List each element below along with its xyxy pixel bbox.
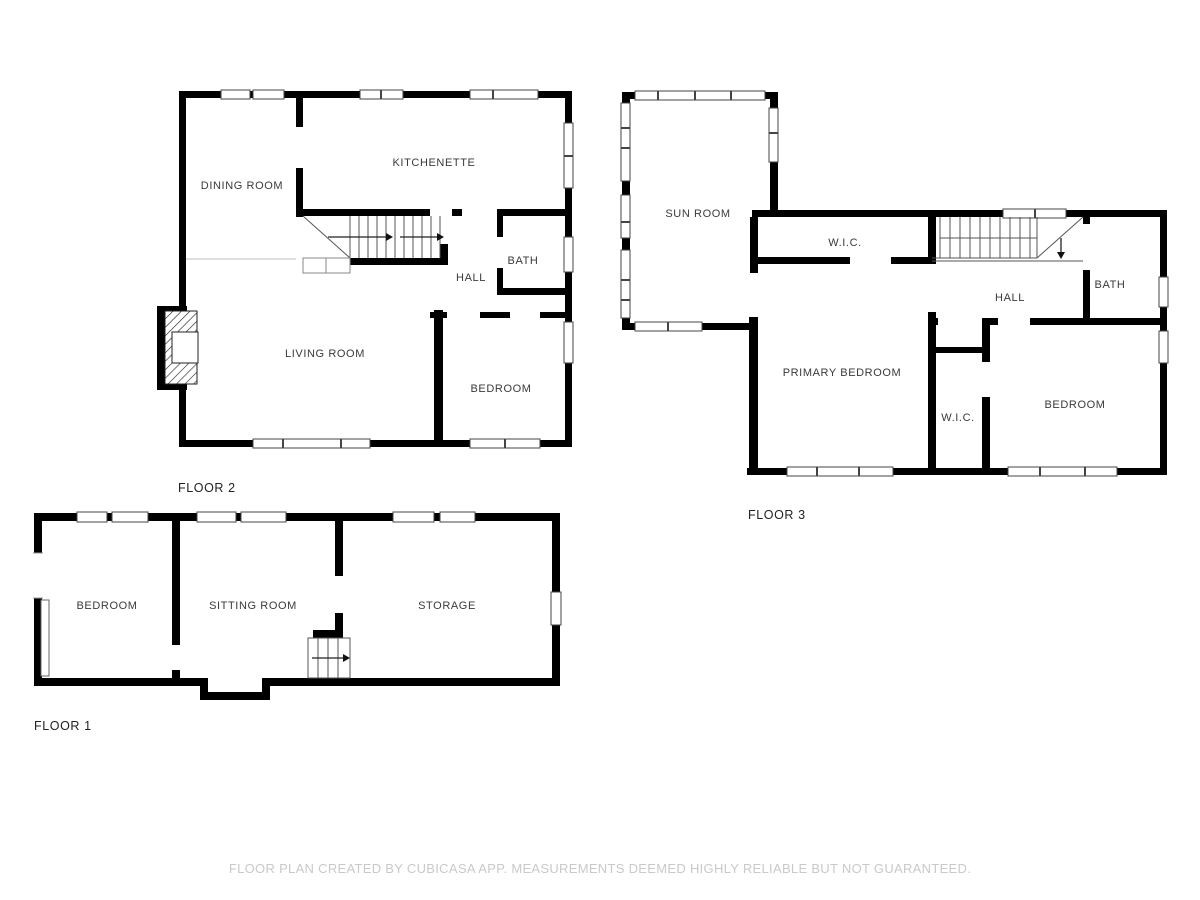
floor1-windows <box>77 512 561 625</box>
floor2-label: FLOOR 2 <box>178 481 236 495</box>
floor1-staircase <box>308 638 350 678</box>
room-label-hall-floor2: HALL <box>456 272 486 284</box>
room-label-wic-bottom: W.I.C. <box>941 412 975 424</box>
floor3-plan-drawing <box>615 85 1175 480</box>
room-label-living-room: LIVING ROOM <box>285 348 365 360</box>
floor2-plan-drawing <box>150 85 585 455</box>
floor3-label: FLOOR 3 <box>748 508 806 522</box>
room-label-bedroom-floor3: BEDROOM <box>1044 399 1105 411</box>
room-label-dining-room: DINING ROOM <box>201 180 283 192</box>
room-label-bath-floor3: BATH <box>1095 279 1126 291</box>
floor1-label: FLOOR 1 <box>34 719 92 733</box>
room-label-primary-bedroom: PRIMARY BEDROOM <box>783 367 902 379</box>
entry-step <box>200 678 270 700</box>
room-label-bath-floor2: BATH <box>508 255 539 267</box>
room-label-kitchenette: KITCHENETTE <box>393 157 476 169</box>
floor3-staircase <box>932 217 1083 261</box>
room-label-bedroom-floor2: BEDROOM <box>470 383 531 395</box>
fireplace <box>157 306 198 390</box>
disclaimer-text: FLOOR PLAN CREATED BY CUBICASA APP. MEAS… <box>0 861 1200 876</box>
room-label-bedroom-floor1: BEDROOM <box>76 600 137 612</box>
room-label-sun-room: SUN ROOM <box>665 208 730 220</box>
room-label-hall-floor3: HALL <box>995 292 1025 304</box>
room-label-sitting-room: SITTING ROOM <box>209 600 297 612</box>
room-label-wic-top: W.I.C. <box>828 237 862 249</box>
room-label-storage: STORAGE <box>418 600 476 612</box>
